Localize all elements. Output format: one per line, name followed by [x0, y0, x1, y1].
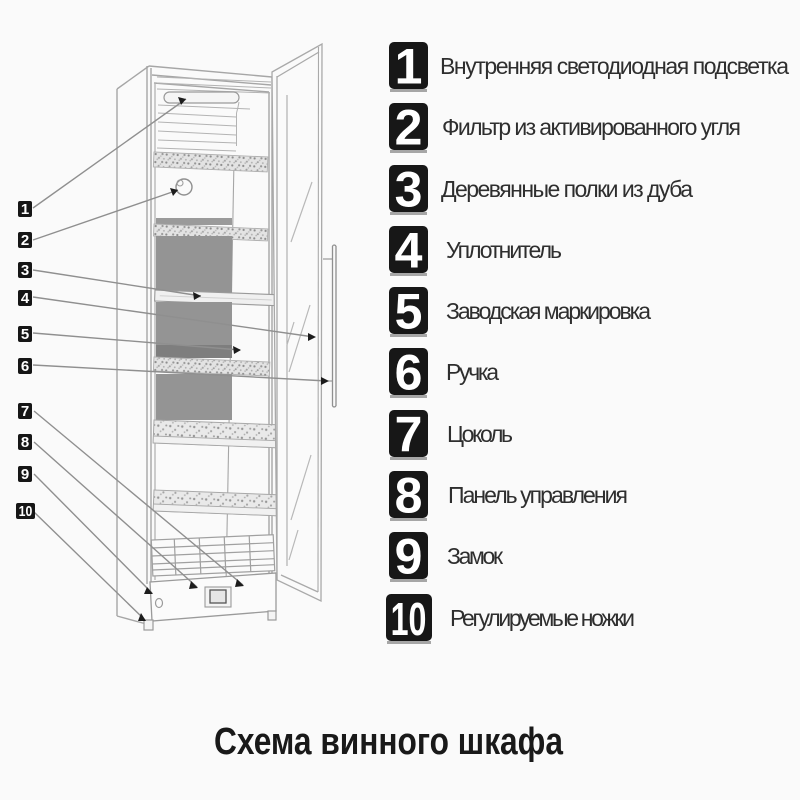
svg-text:3: 3 — [395, 162, 423, 218]
svg-text:Схема винного шкафа: Схема винного шкафа — [214, 721, 564, 763]
svg-text:4: 4 — [395, 223, 423, 279]
svg-text:5: 5 — [395, 284, 423, 340]
svg-text:2: 2 — [21, 232, 29, 249]
svg-text:Фильтр из активированного угля: Фильтр из активированного угля — [442, 114, 741, 140]
svg-text:8: 8 — [395, 468, 423, 524]
svg-text:Панель управления: Панель управления — [448, 482, 628, 508]
svg-text:8: 8 — [21, 434, 29, 451]
svg-text:5: 5 — [21, 326, 29, 343]
svg-text:7: 7 — [395, 407, 423, 463]
svg-text:Замок: Замок — [447, 543, 504, 569]
svg-text:Регулируемые ножки: Регулируемые ножки — [450, 605, 635, 631]
svg-text:Внутренняя светодиодная подсве: Внутренняя светодиодная подсветка — [440, 53, 789, 79]
svg-text:9: 9 — [395, 529, 423, 585]
svg-text:7: 7 — [21, 403, 29, 420]
svg-text:1: 1 — [21, 201, 29, 218]
svg-text:2: 2 — [395, 100, 423, 156]
svg-text:3: 3 — [21, 262, 29, 279]
svg-text:6: 6 — [21, 358, 29, 375]
svg-text:1: 1 — [395, 39, 423, 95]
svg-text:Деревянные полки из дуба: Деревянные полки из дуба — [441, 176, 693, 202]
svg-text:9: 9 — [21, 466, 29, 483]
svg-text:4: 4 — [21, 290, 30, 307]
svg-text:Уплотнитель: Уплотнитель — [446, 237, 562, 263]
svg-text:Цоколь: Цоколь — [447, 421, 513, 447]
svg-text:Ручка: Ручка — [446, 359, 499, 385]
svg-text:Заводская маркировка: Заводская маркировка — [446, 298, 651, 324]
svg-text:6: 6 — [395, 345, 423, 401]
svg-text:10: 10 — [19, 503, 33, 519]
svg-text:10: 10 — [391, 594, 427, 645]
